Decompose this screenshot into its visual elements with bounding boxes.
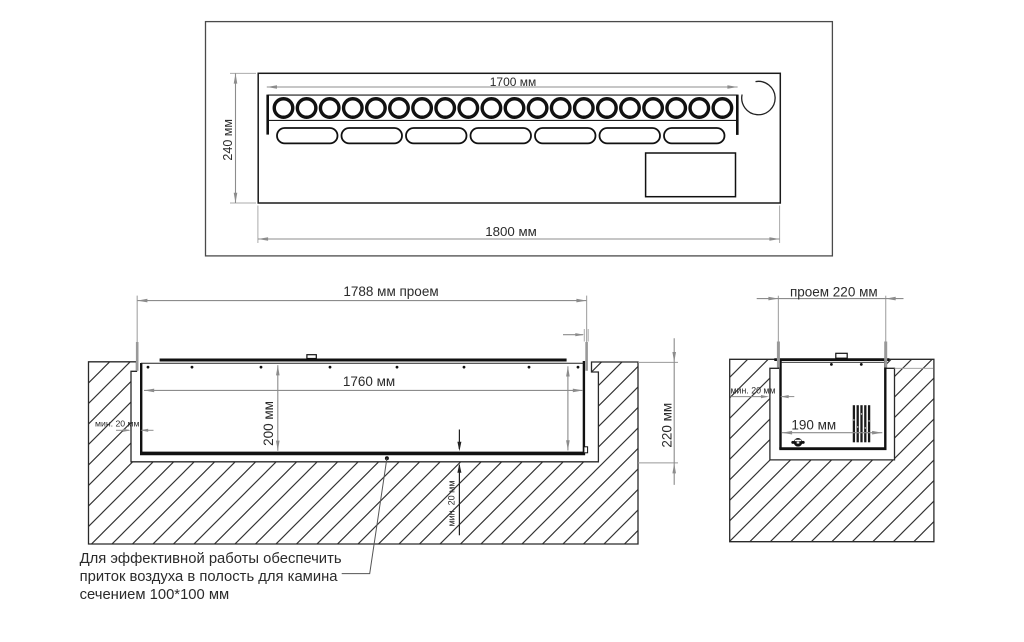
svg-text:1760 мм: 1760 мм (343, 374, 395, 389)
svg-text:1700 мм: 1700 мм (490, 75, 537, 89)
svg-text:проем 220 мм: проем 220 мм (790, 284, 878, 299)
svg-text:190 мм: 190 мм (791, 418, 836, 433)
svg-text:Для эффективной работы обеспеч: Для эффективной работы обеспечить (80, 551, 342, 567)
svg-text:мин. 20 мм: мин. 20 мм (447, 480, 457, 526)
svg-text:220 мм: 220 мм (659, 403, 674, 448)
svg-text:1800 мм: 1800 мм (485, 224, 537, 239)
svg-text:мин. 20 мм: мин. 20 мм (731, 385, 776, 395)
svg-text:1788 мм проем: 1788 мм проем (343, 284, 438, 299)
svg-text:200 мм: 200 мм (261, 401, 276, 446)
svg-text:240 мм: 240 мм (221, 119, 235, 161)
svg-text:мин. 20 мм: мин. 20 мм (95, 418, 139, 428)
svg-text:приток воздуха в полость для к: приток воздуха в полость для камина (80, 569, 339, 585)
svg-text:сечением 100*100 мм: сечением 100*100 мм (80, 587, 230, 603)
